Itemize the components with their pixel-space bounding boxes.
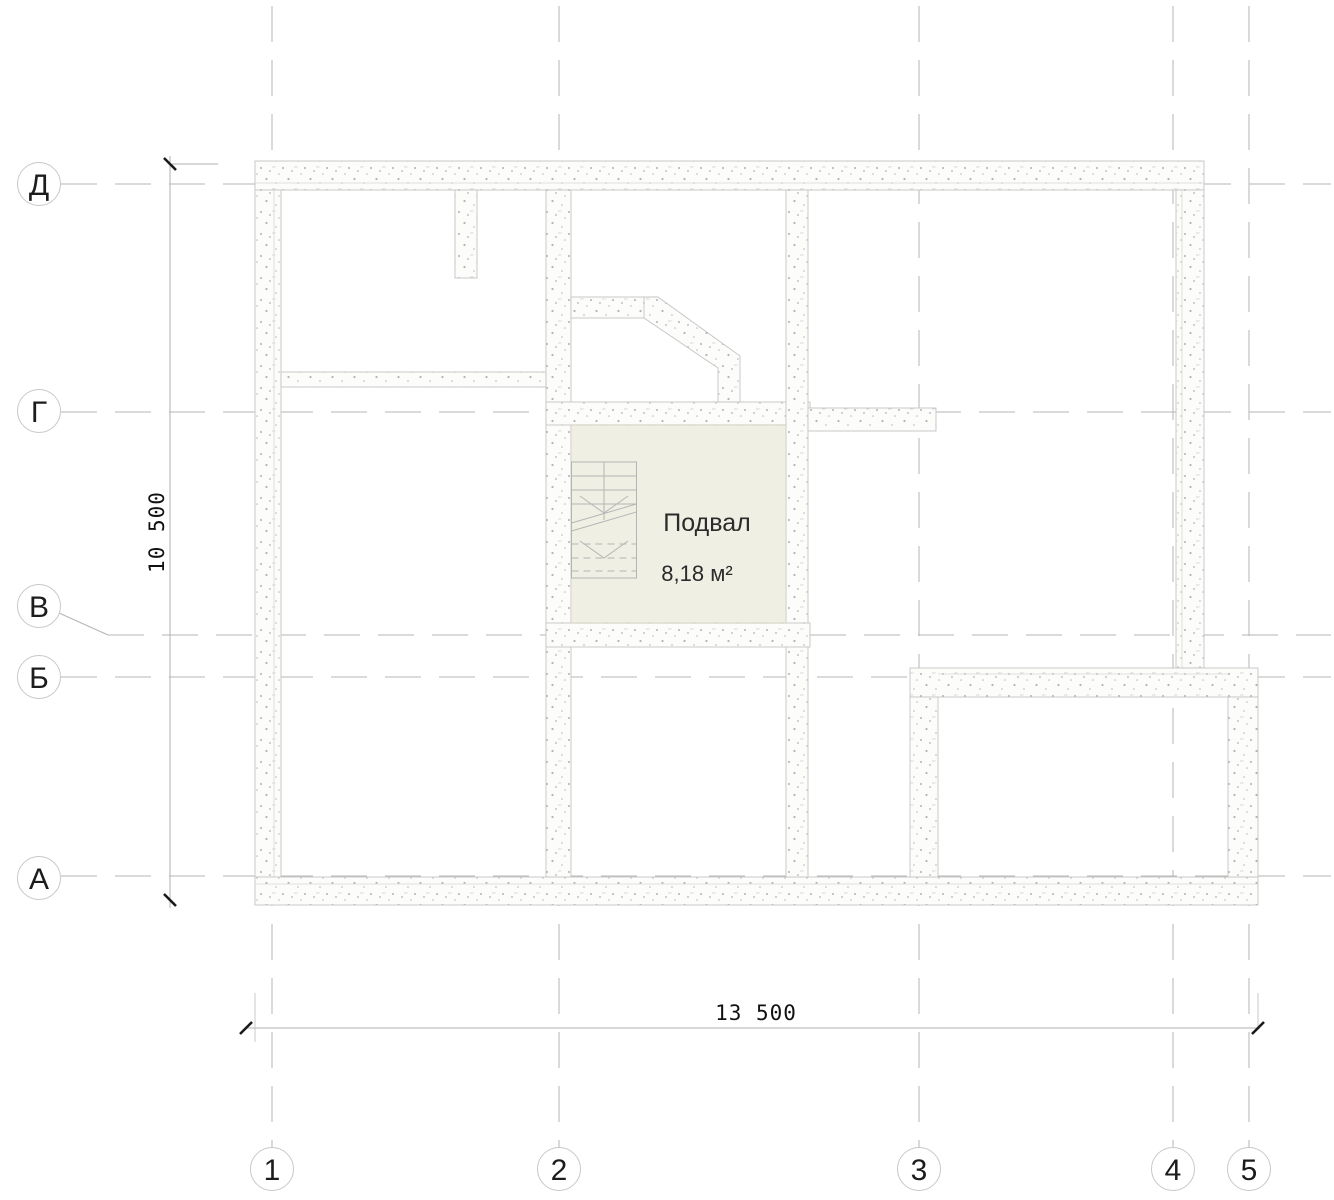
wall-segment-right-exterior: [1176, 190, 1204, 668]
wall-segment-left-exterior: [255, 190, 281, 877]
axis-bubble-row-g: Г: [18, 390, 61, 433]
axis-bubble-label: Д: [29, 169, 49, 202]
wall-segment-top-stub: [455, 190, 477, 278]
axis-bubble-label: 1: [264, 1154, 281, 1187]
floor-plan-drawing: Подвал 8,18 м² 10 500 13 500 Д Г В: [0, 0, 1334, 1200]
axis-bubble-row-v: В: [18, 585, 61, 628]
grid-line-row-v-leader: [59, 613, 108, 635]
wall-segment-basement-top: [546, 402, 810, 425]
dimension-vertical: 10 500: [145, 156, 218, 908]
room-name-text: Подвал: [663, 509, 750, 537]
room-area-text: 8,18 м²: [661, 561, 732, 586]
dimension-horizontal-value: 13 500: [715, 1001, 797, 1025]
wall-segment-annex-right: [1228, 697, 1258, 877]
dimension-vertical-value: 10 500: [145, 491, 169, 573]
axis-bubbles-cols: 1 2 3 4 5: [251, 1148, 1271, 1191]
wall-segment-annex-top: [910, 668, 1258, 697]
dimension-horizontal: 13 500: [240, 993, 1264, 1042]
axis-bubble-row-b: Б: [18, 656, 61, 699]
wall-segment-g-stub: [808, 408, 936, 431]
axis-bubble-row-d: Д: [18, 163, 61, 206]
axis-bubble-col-3: 3: [898, 1148, 941, 1191]
wall-segment-left-partition: [281, 372, 546, 387]
axis-bubbles-rows: Д Г В Б А: [18, 163, 61, 900]
wall-segment-top-exterior: [255, 161, 1204, 190]
wall-segment-grid2-vertical: [546, 190, 571, 877]
wall-segment-diagonal: [644, 297, 740, 402]
axis-bubble-label: А: [29, 863, 49, 896]
axis-bubble-row-a: А: [18, 857, 61, 900]
wall-segment-mid-vertical: [786, 190, 808, 877]
wall-segment-basement-bottom: [546, 623, 810, 647]
axis-bubble-label: 5: [1241, 1154, 1258, 1187]
axis-bubble-col-4: 4: [1152, 1148, 1195, 1191]
axis-bubble-label: Б: [29, 662, 49, 695]
axis-bubble-label: 3: [911, 1154, 928, 1187]
wall-segment-bottom-exterior: [255, 877, 1258, 905]
axis-bubble-label: 4: [1165, 1154, 1182, 1187]
wall-segment-annex-left: [910, 697, 938, 877]
axis-bubble-label: 2: [551, 1154, 568, 1187]
floor-plan-canvas: Подвал 8,18 м² 10 500 13 500 Д Г В: [0, 0, 1334, 1200]
axis-bubble-label: В: [29, 591, 49, 624]
axis-bubble-col-5: 5: [1228, 1148, 1271, 1191]
axis-bubble-label: Г: [31, 396, 47, 429]
axis-bubble-col-1: 1: [251, 1148, 294, 1191]
axis-bubble-col-2: 2: [538, 1148, 581, 1191]
